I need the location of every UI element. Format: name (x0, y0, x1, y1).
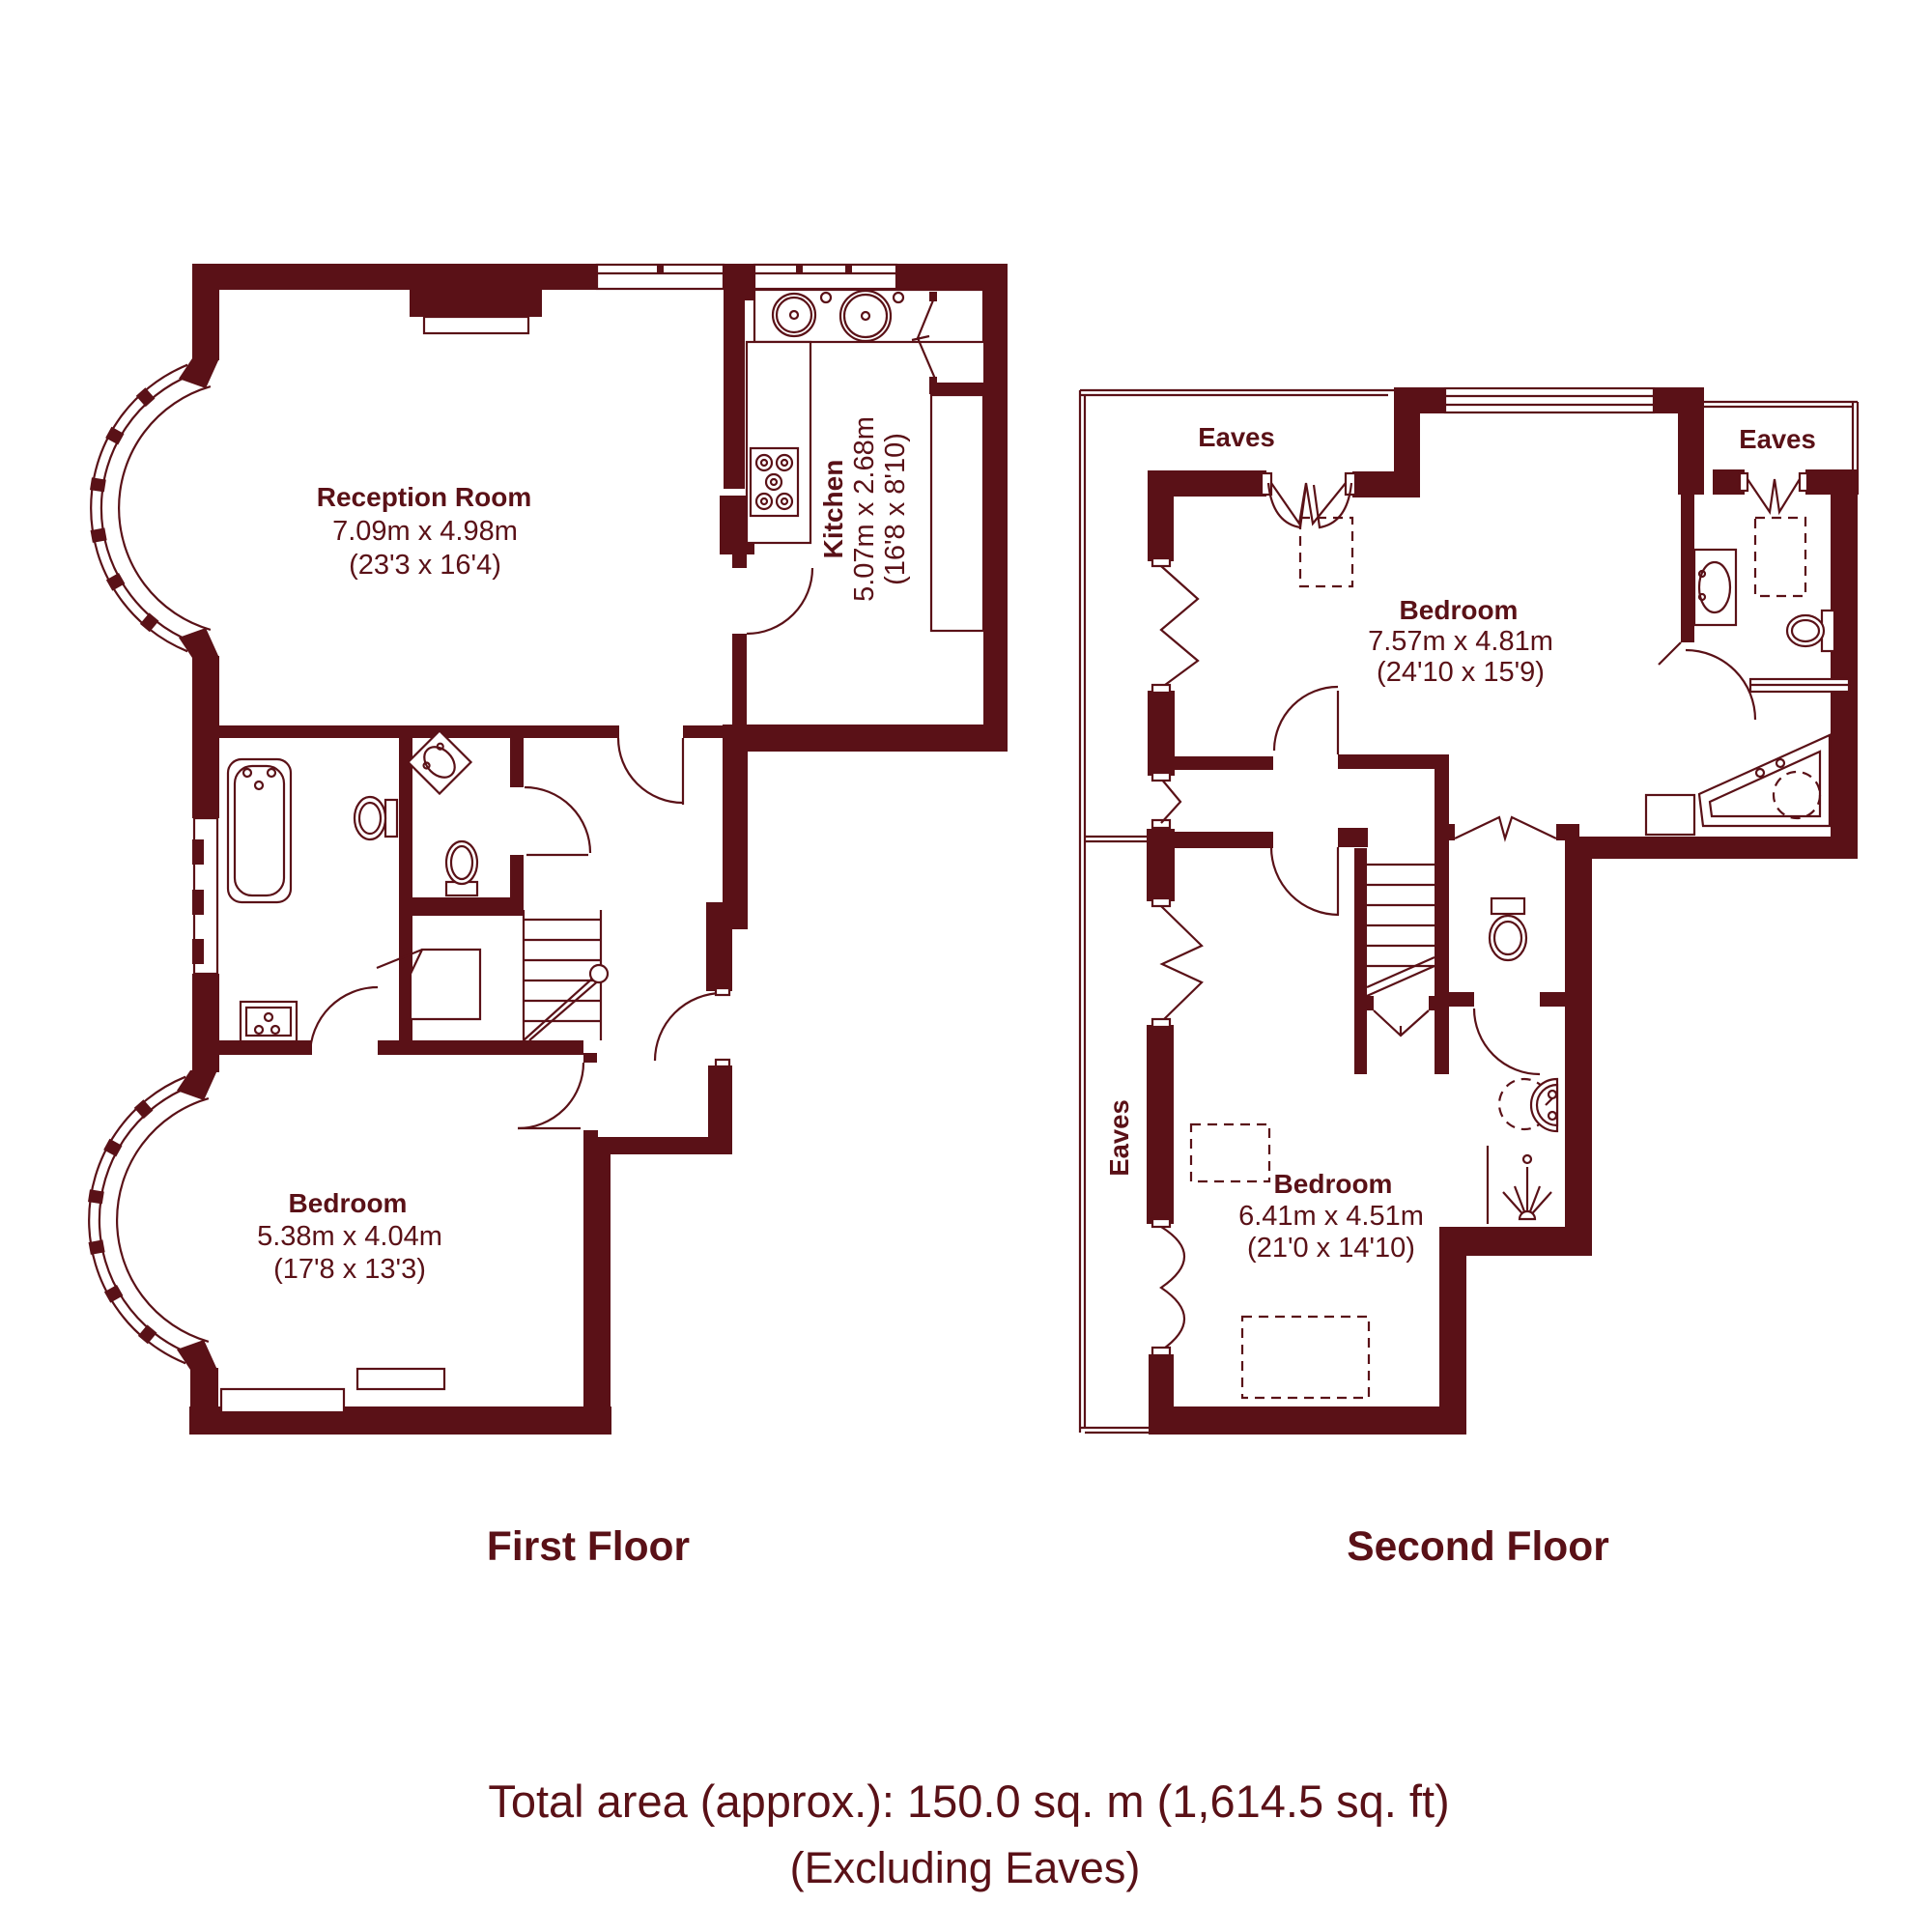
svg-text:Total area (approx.): 150.0 sq: Total area (approx.): 150.0 sq. m (1,614… (488, 1776, 1449, 1827)
svg-text:Reception Room: Reception Room (317, 482, 531, 512)
svg-text:Eaves: Eaves (1104, 1099, 1134, 1177)
svg-text:(23'3 x 16'4): (23'3 x 16'4) (349, 550, 501, 581)
svg-text:(17'8 x 13'3): (17'8 x 13'3) (273, 1254, 426, 1285)
svg-text:5.38m x 4.04m: 5.38m x 4.04m (257, 1221, 442, 1252)
svg-text:Second Floor: Second Floor (1347, 1524, 1609, 1570)
svg-text:7.57m x 4.81m: 7.57m x 4.81m (1368, 626, 1553, 657)
svg-text:First Floor: First Floor (487, 1524, 690, 1570)
svg-text:Kitchen: Kitchen (818, 460, 848, 559)
svg-text:Bedroom: Bedroom (289, 1188, 408, 1218)
svg-text:(24'10 x 15'9): (24'10 x 15'9) (1377, 657, 1545, 688)
svg-text:Eaves: Eaves (1739, 424, 1816, 454)
svg-text:5.07m x 2.68m: 5.07m x 2.68m (849, 416, 880, 602)
svg-text:7.09m x 4.98m: 7.09m x 4.98m (332, 516, 518, 547)
svg-text:Bedroom: Bedroom (1400, 595, 1519, 625)
svg-text:(Excluding Eaves): (Excluding Eaves) (790, 1843, 1141, 1892)
svg-text:Eaves: Eaves (1198, 422, 1275, 452)
svg-text:Bedroom: Bedroom (1274, 1169, 1393, 1199)
svg-text:6.41m x 4.51m: 6.41m x 4.51m (1238, 1201, 1424, 1232)
svg-text:(21'0 x 14'10): (21'0 x 14'10) (1247, 1233, 1415, 1264)
svg-text:(16'8 x 8'10): (16'8 x 8'10) (880, 433, 911, 585)
